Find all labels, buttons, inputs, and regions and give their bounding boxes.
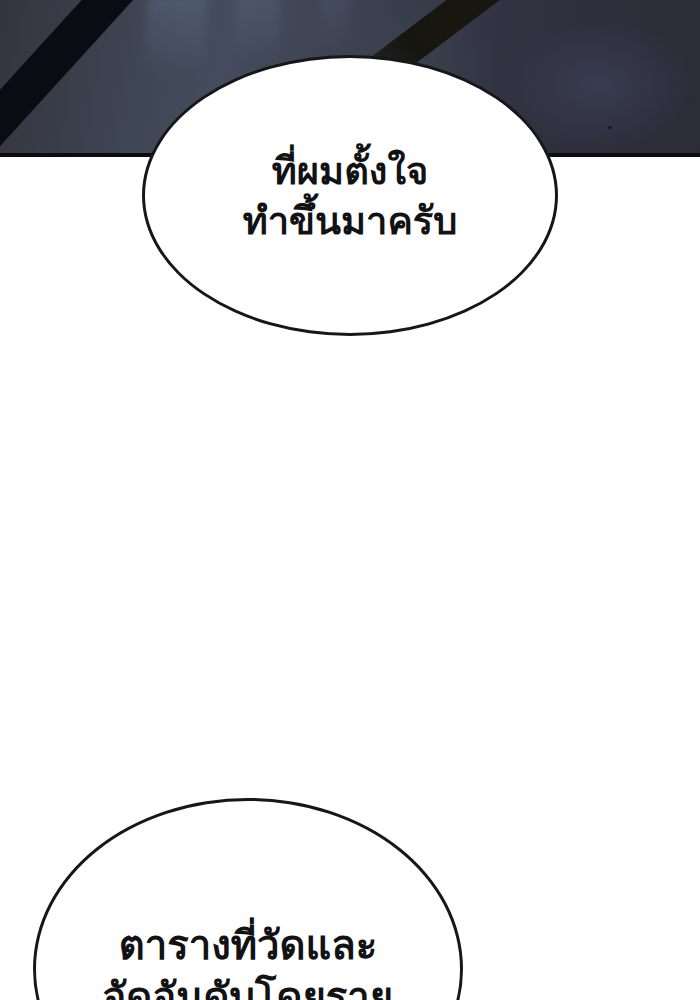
speech-line: ที่ผมตั้งใจ: [145, 146, 555, 196]
speech-text: ที่ผมตั้งใจ ทำขึ้นมาครับ: [145, 146, 555, 246]
speech-line: ตารางที่วัดและ: [36, 919, 460, 971]
speech-line: จัดอันดับโดยราย: [36, 971, 460, 1000]
speech-line: ทำขึ้นมาครับ: [145, 196, 555, 246]
speech-text: ตารางที่วัดและ จัดอันดับโดยราย: [36, 919, 460, 1000]
light-streak: [142, 0, 209, 90]
speech-bubble-top: ที่ผมตั้งใจ ทำขึ้นมาครับ: [142, 55, 558, 336]
speech-bubble-bottom: ตารางที่วัดและ จัดอันดับโดยราย: [33, 798, 463, 1000]
comic-page: ที่ผมตั้งใจ ทำขึ้นมาครับ ตารางที่วัดและ …: [0, 0, 700, 1000]
corner-diagonal-beam: [0, 0, 138, 157]
dust-speck: [608, 126, 612, 129]
